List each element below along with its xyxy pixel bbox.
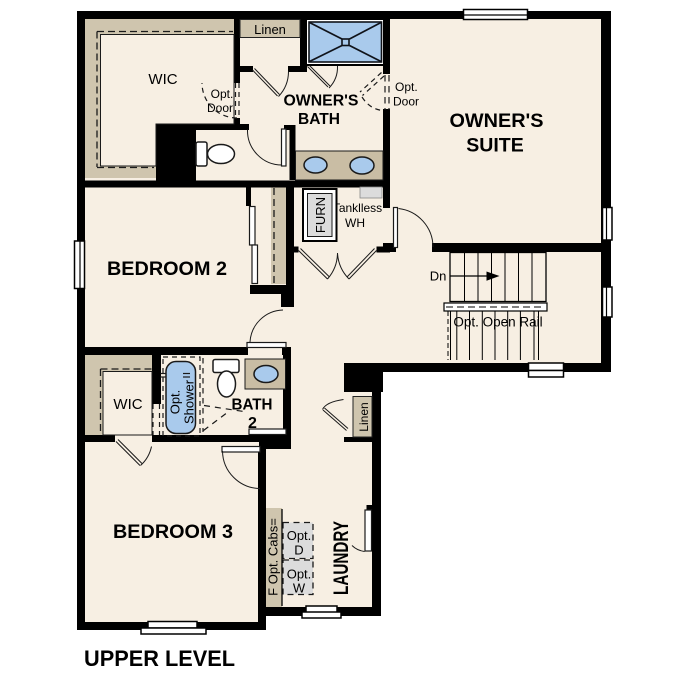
svg-text:WIC: WIC bbox=[148, 71, 177, 88]
svg-text:Door: Door bbox=[207, 101, 233, 115]
svg-text:Opt.: Opt. bbox=[287, 528, 312, 543]
svg-text:LAUNDRY: LAUNDRY bbox=[330, 521, 353, 595]
svg-text:Opt. Open Rail: Opt. Open Rail bbox=[453, 315, 542, 330]
svg-text:WIC: WIC bbox=[113, 396, 142, 413]
svg-text:UPPER LEVEL: UPPER LEVEL bbox=[84, 646, 235, 671]
svg-text:BATH: BATH bbox=[298, 111, 340, 128]
svg-text:Opt.: Opt. bbox=[395, 80, 418, 94]
svg-text:Opt.: Opt. bbox=[211, 87, 234, 101]
svg-text:Door: Door bbox=[393, 95, 419, 109]
svg-text:OWNER'S: OWNER'S bbox=[450, 110, 544, 132]
svg-text:Opt.: Opt. bbox=[168, 390, 183, 415]
svg-text:OWNER'S: OWNER'S bbox=[284, 93, 359, 110]
svg-text:Shower: Shower bbox=[182, 379, 197, 424]
svg-text:Opt.: Opt. bbox=[287, 567, 312, 582]
svg-text:Tanklless: Tanklless bbox=[333, 201, 382, 215]
svg-text:W: W bbox=[293, 581, 306, 596]
svg-text:Dn: Dn bbox=[430, 269, 447, 284]
svg-text:BEDROOM 2: BEDROOM 2 bbox=[107, 258, 227, 280]
svg-text:WH: WH bbox=[345, 216, 365, 230]
svg-text:SUITE: SUITE bbox=[466, 135, 524, 157]
svg-text:Linen: Linen bbox=[254, 22, 286, 37]
svg-text:FURN: FURN bbox=[313, 197, 328, 233]
svg-text:F Opt. Cabs=: F Opt. Cabs= bbox=[266, 518, 281, 596]
svg-text:Linen: Linen bbox=[357, 402, 371, 431]
svg-text:BEDROOM 3: BEDROOM 3 bbox=[113, 521, 233, 543]
svg-text:D: D bbox=[294, 543, 303, 558]
